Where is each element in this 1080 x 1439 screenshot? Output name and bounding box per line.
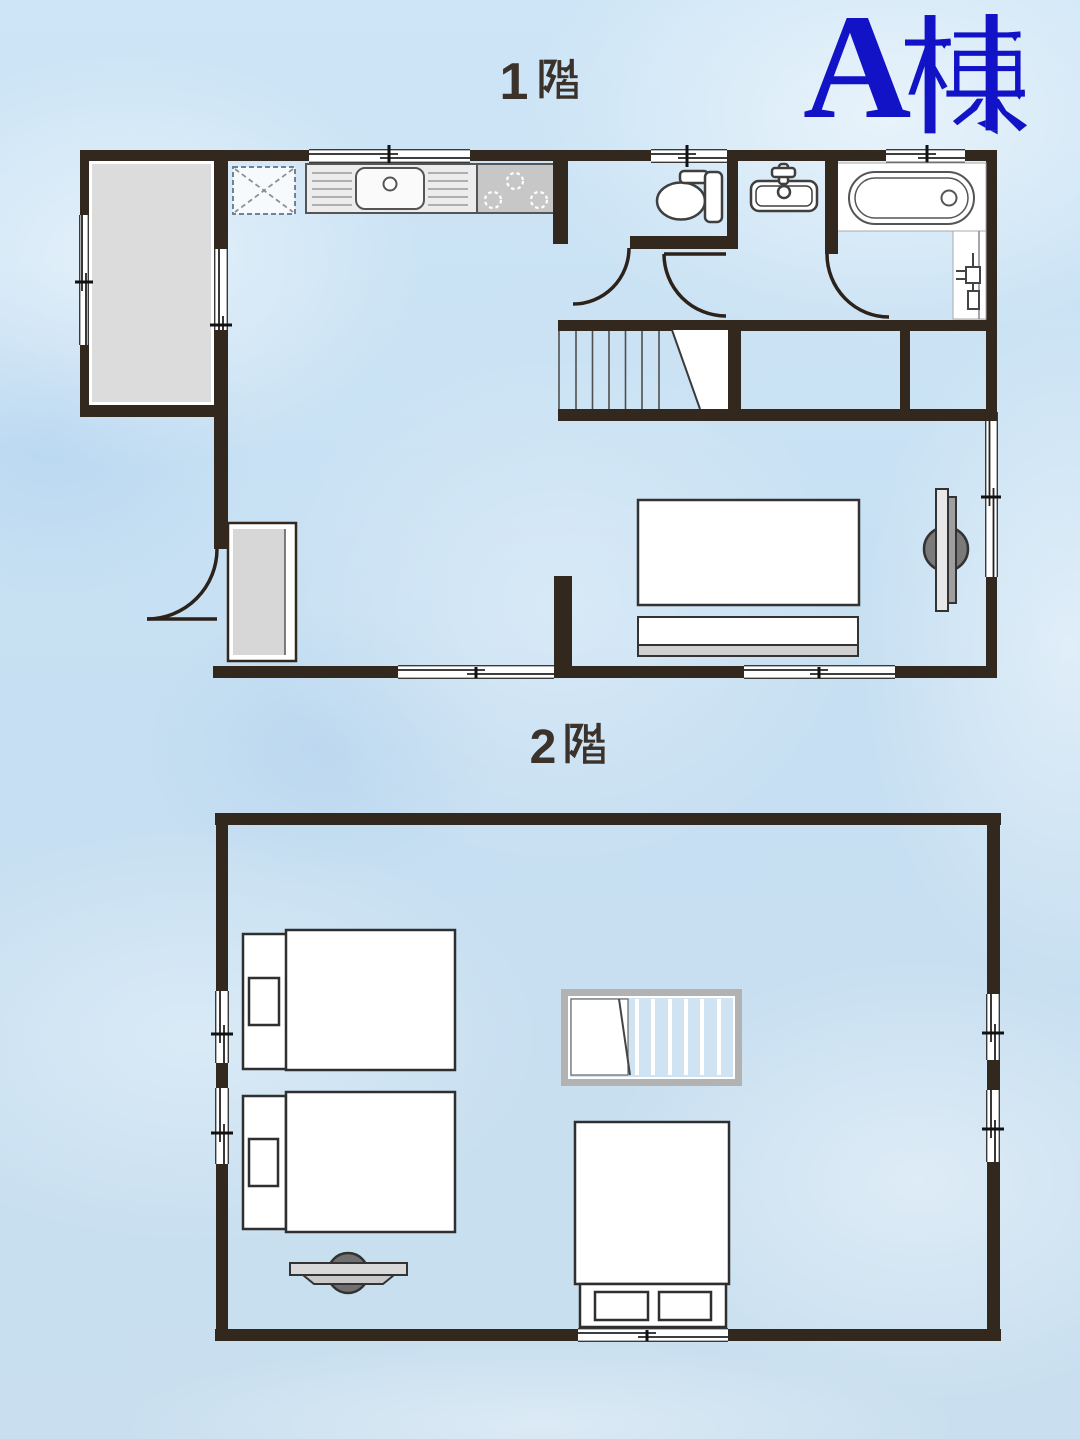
svg-text:A: A (803, 0, 911, 150)
svg-text:2: 2 (530, 721, 557, 774)
svg-text:1: 1 (500, 53, 529, 111)
